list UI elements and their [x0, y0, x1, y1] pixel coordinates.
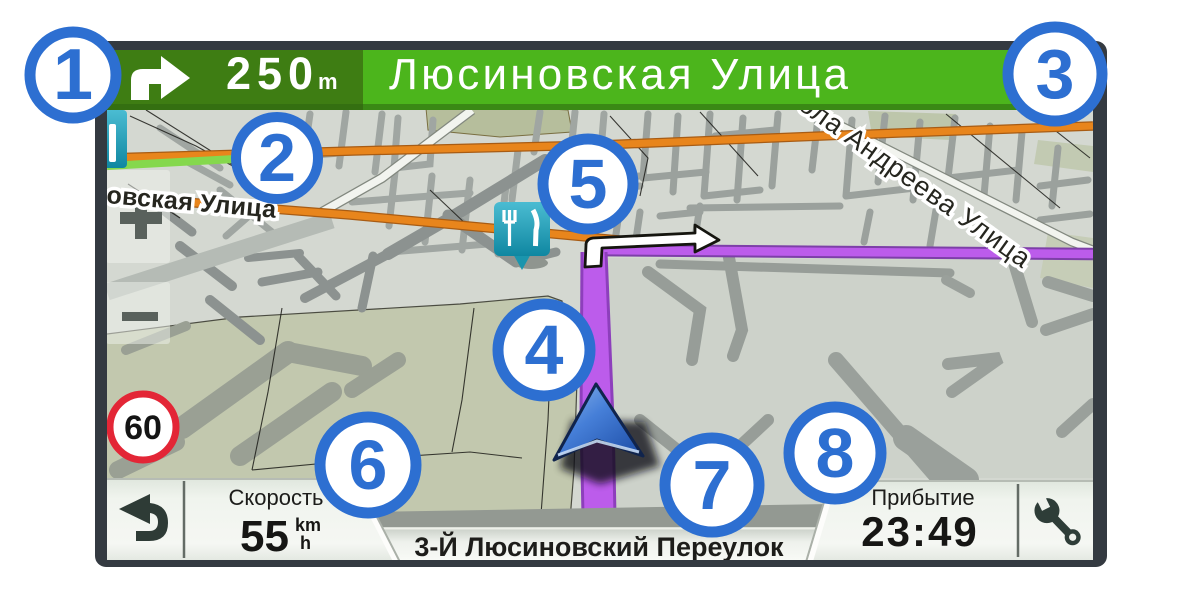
svg-text:60: 60: [124, 409, 162, 447]
svg-text:23:49: 23:49: [861, 508, 978, 555]
svg-text:8: 8: [816, 414, 855, 492]
svg-text:250: 250: [226, 48, 319, 99]
svg-text:h: h: [300, 533, 311, 553]
svg-text:1: 1: [53, 35, 93, 115]
svg-text:6: 6: [349, 426, 388, 504]
svg-text:km: km: [295, 515, 321, 535]
svg-text:7: 7: [693, 446, 732, 524]
svg-text:Скорость: Скорость: [228, 485, 323, 510]
svg-text:55: 55: [240, 512, 289, 561]
svg-text:Прибытие: Прибытие: [871, 485, 974, 510]
svg-text:3: 3: [1036, 35, 1075, 113]
svg-text:2: 2: [258, 120, 296, 196]
svg-text:Люсиновская Улица: Люсиновская Улица: [389, 50, 851, 99]
svg-text:m: m: [318, 69, 338, 94]
svg-text:3-Й Люсиновский Переулок: 3-Й Люсиновский Переулок: [414, 531, 784, 562]
svg-text:5: 5: [569, 145, 608, 223]
svg-text:4: 4: [525, 311, 564, 389]
